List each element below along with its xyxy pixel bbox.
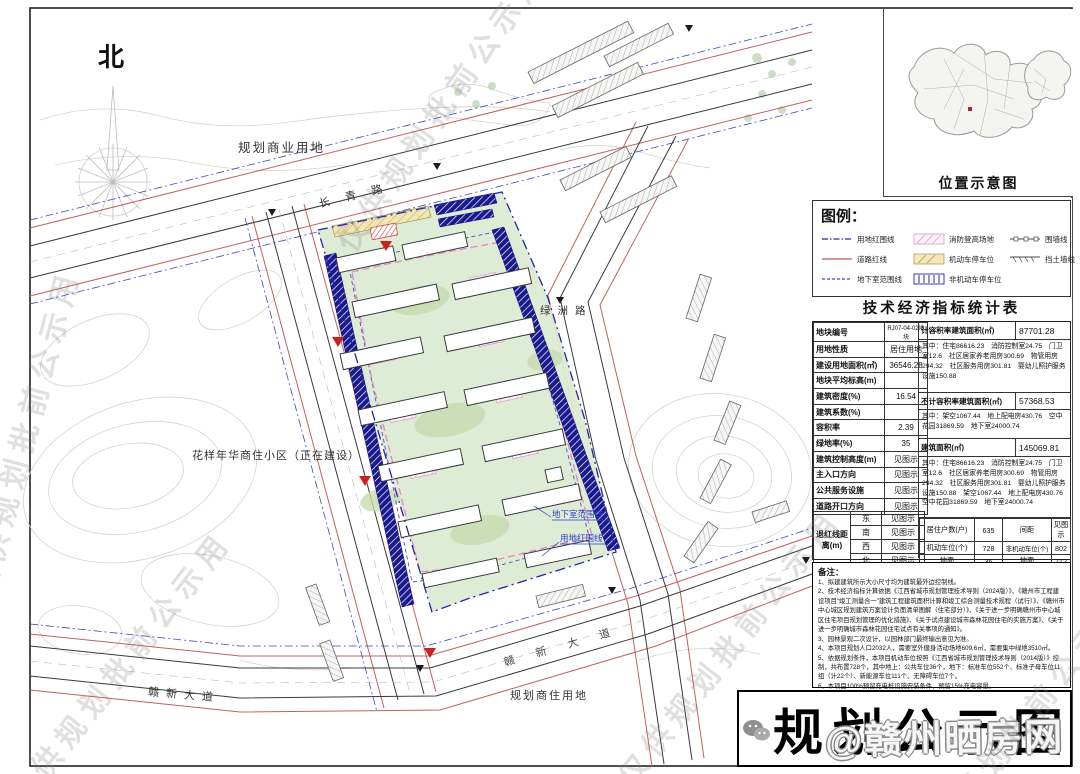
setback-label: 退红线距离(m) — [814, 512, 851, 568]
row-label: 地块平均标高(m) — [814, 373, 885, 389]
legend-label: 挡土墙线 — [1045, 254, 1075, 265]
row-label: 主入口方向 — [814, 467, 885, 483]
location-map-graphic — [884, 9, 1073, 169]
legend-label: 用地红围线 — [857, 234, 895, 245]
row-label: 用地性质 — [814, 342, 885, 358]
plan-sheet: 北 — [0, 0, 1080, 774]
wall-symbol — [1009, 234, 1041, 244]
callout-red-line: 用地红围线 — [560, 533, 603, 543]
stat-value: 见图示 — [1052, 519, 1071, 542]
table-grid: 地块编号RJ07-04-02地块 用地性质居住用地 建设用地面积(㎡)36546… — [812, 321, 1071, 560]
label-changqing-road: 长青路 — [317, 179, 399, 211]
road-redline-symbol — [821, 254, 853, 264]
row-label: 公共服务设施 — [814, 483, 885, 499]
gfa-total-detail: 其中：住宅86616.23 消防控制室24.75 门卫室12.6 社区居家养老用… — [919, 457, 1071, 518]
row-label: 建筑控制高度(m) — [814, 451, 885, 467]
stat-label: 居住户数(户) — [920, 519, 975, 542]
legend-label: 地下室范围线 — [857, 274, 902, 285]
row-label: 容积率 — [814, 420, 885, 436]
stat-value: 802 — [1052, 542, 1071, 555]
legend-item: 挡土墙线 — [1009, 249, 1075, 269]
wechat-icon — [741, 718, 771, 744]
legend-grid: 用地红围线 消防登高场地 围墙线 道路红线 机动车停车位 挡土墙线 — [821, 229, 1062, 289]
stat-label: 非机动车位(个) — [1003, 542, 1052, 555]
row-label: 地块编号 — [814, 323, 885, 342]
legend-label: 道路红线 — [857, 254, 887, 265]
legend-item: 道路红线 — [821, 249, 913, 269]
label-planned-commercial-residential: 规划商住用地 — [510, 688, 588, 702]
fire-pad-symbol — [913, 233, 945, 245]
indicator-table: 技术经济指标统计表 地块编号RJ07-04-02地块 用地性质居住用地 建设用地… — [812, 297, 1071, 560]
legend-item: 非机动车停车位 — [913, 269, 1009, 289]
legend-title: 图例： — [821, 205, 1062, 226]
table-title: 技术经济指标统计表 — [812, 297, 1071, 321]
label-existing-community: 花样年华商住小区（正在建设） — [192, 448, 360, 462]
note-line: 3、园林景观二次设计，以园林部门最终输出意见为准。 — [818, 635, 1065, 644]
row-label: 建筑密度(%) — [814, 389, 885, 405]
location-map-caption: 位置示意图 — [884, 173, 1073, 193]
notes-box: 备注： 1、拟建建筑所示大小尺寸均为建筑最外边控制线。 2、技术经济指标计算依据… — [812, 562, 1071, 688]
legend-item: 围墙线 — [1009, 229, 1075, 249]
label-ganxin-avenue: 赣新大道 — [148, 684, 221, 704]
stat-label: 间距 — [1003, 519, 1052, 542]
gfa-total-label: 建筑面积(㎡) — [919, 442, 1015, 453]
title-block: 规划公示图 @赣州晒房网 — [737, 690, 1072, 767]
note-line: 2、技术经济指标计算依据《江西省城市规划管理技术导则（2024版）》、《赣州市工… — [818, 587, 1065, 634]
setback-dir: 东 — [851, 512, 882, 526]
row-label: 绿地率(%) — [814, 436, 885, 452]
note-line: 1、拟建建筑所示大小尺寸均为建筑最外边控制线。 — [818, 578, 1065, 587]
watermark-brand: @赣州晒房网 — [824, 706, 1064, 765]
table-left: 地块编号RJ07-04-02地块 用地性质居住用地 建设用地面积(㎡)36546… — [813, 322, 928, 515]
north-label: 北 — [98, 42, 124, 72]
legend-item: 地下室范围线 — [821, 269, 913, 289]
site-location-marker — [968, 107, 972, 111]
stat-value: 635 — [975, 519, 1003, 542]
legend-item: 用地红围线 — [821, 229, 913, 249]
setback-dir: 南 — [851, 526, 882, 540]
label-lvzhou-road: 绿洲路 — [540, 304, 593, 317]
redline-symbol — [821, 234, 853, 244]
location-map-box: 位置示意图 — [883, 9, 1073, 197]
setback-dir: 西 — [851, 540, 882, 554]
callout-basement-line: 地下室范围线 — [552, 509, 604, 519]
gfa-total-value: 145069.81 — [1015, 439, 1071, 456]
north-arrow: 北 — [75, 42, 151, 220]
basement-line-symbol — [821, 274, 853, 284]
retaining-wall-symbol — [1009, 254, 1041, 264]
gfa-uncounted-value: 57368.53 — [1015, 393, 1071, 409]
legend-label: 非机动车停车位 — [949, 274, 1002, 285]
notes-title: 备注： — [818, 566, 1065, 578]
legend-box: 图例： 用地红围线 消防登高场地 围墙线 道路红线 机动车停车位 — [812, 200, 1071, 297]
note-line: 5、依据规划条件，本项目机动车位按照《江西省城市规划管理技术导则（2014版）》… — [818, 654, 1065, 682]
stat-label: 机动车位(个) — [920, 542, 975, 555]
row-label: 建筑系数(%) — [814, 404, 885, 420]
legend-label: 机动车停车位 — [949, 254, 994, 265]
gfa-uncounted-label: 不计容积率建筑面积(㎡) — [919, 396, 1015, 407]
gfa-uncounted-detail: 其中：架空1067.44 地上配电房430.76 空中花园31869.59 地下… — [919, 410, 1071, 439]
table-right-column: 计容积率建筑面积(㎡)87701.28 其中：住宅86616.23 消防控制室2… — [918, 322, 1071, 558]
note-line: 4、本项目规划人口2032人，需要室外健身活动场地609.6㎡，需要集中绿地35… — [818, 644, 1065, 653]
legend-label: 消防登高场地 — [949, 234, 994, 245]
legend-item: 机动车停车位 — [913, 249, 1009, 269]
row-label: 建设用地面积(㎡) — [814, 357, 885, 373]
legend-label: 围墙线 — [1045, 234, 1068, 245]
motor-parking-symbol — [913, 253, 945, 265]
nonmotor-parking-symbol — [913, 273, 945, 285]
gfa-counted-label: 计容积率建筑面积(㎡) — [919, 325, 1015, 336]
label-planned-commercial: 规划商业用地 — [238, 140, 325, 155]
legend-item: 消防登高场地 — [913, 229, 1009, 249]
gfa-counted-value: 87701.28 — [1015, 322, 1071, 339]
setback-table: 退红线距离(m) 东 见图示 南见图示 西见图示 北见图示 — [813, 511, 925, 568]
stat-value: 728 — [975, 542, 1003, 555]
vegetation-marks — [454, 53, 796, 122]
gfa-counted-detail: 其中：住宅86616.23 消防控制室24.75 门卫室12.6 社区居家养老用… — [919, 340, 1071, 393]
